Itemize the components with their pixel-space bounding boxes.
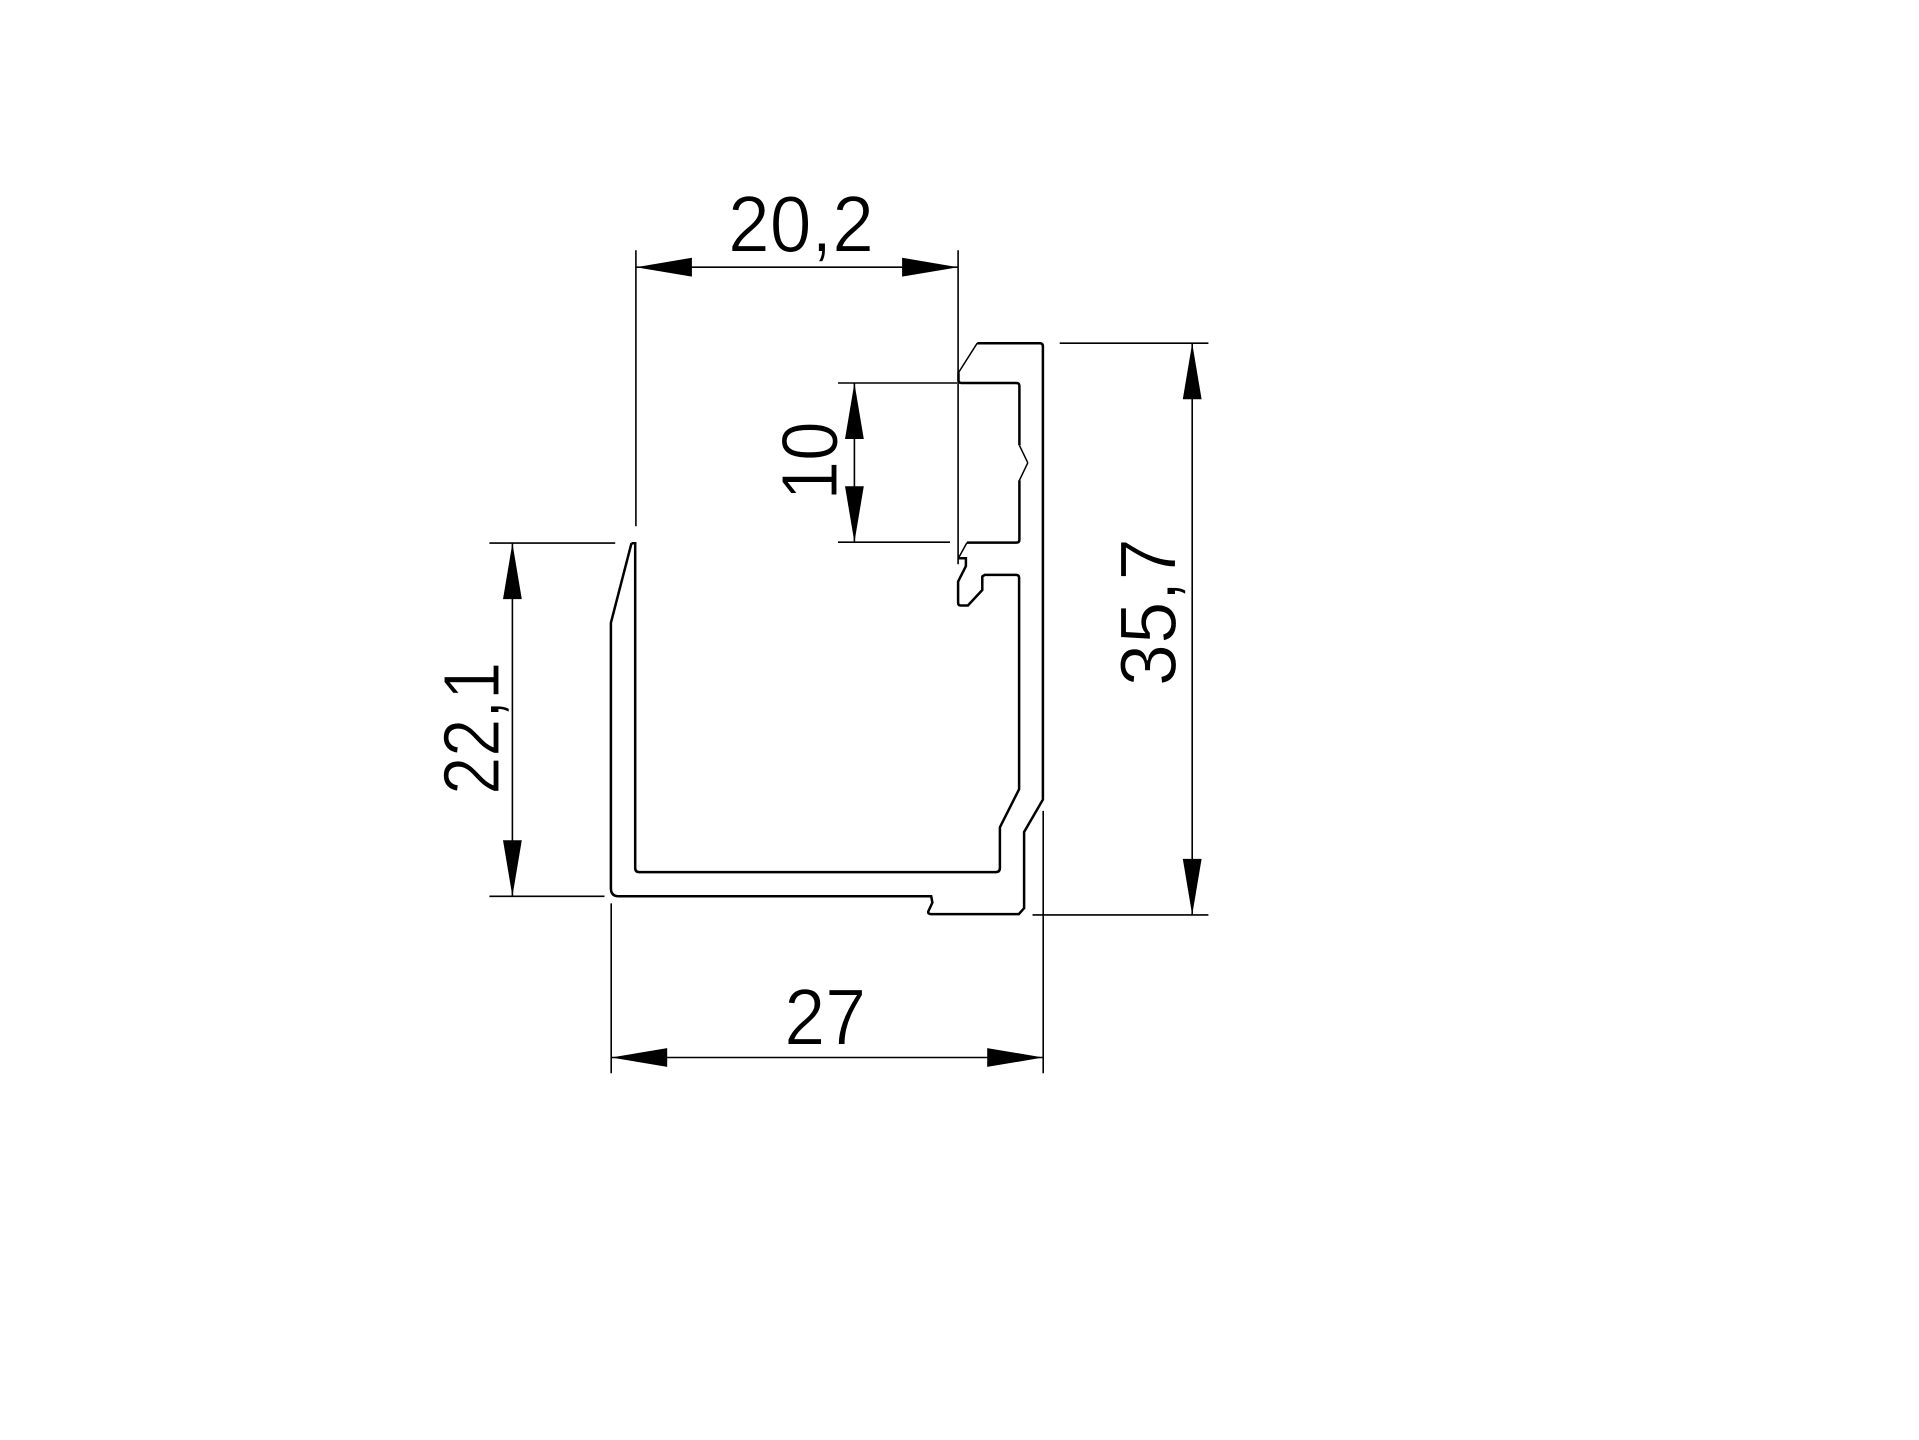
svg-text:20,2: 20,2 [728, 180, 874, 269]
svg-text:10: 10 [765, 421, 854, 500]
svg-text:22,1: 22,1 [427, 662, 516, 795]
svg-text:27: 27 [784, 973, 866, 1062]
svg-text:35,7: 35,7 [1104, 538, 1193, 686]
